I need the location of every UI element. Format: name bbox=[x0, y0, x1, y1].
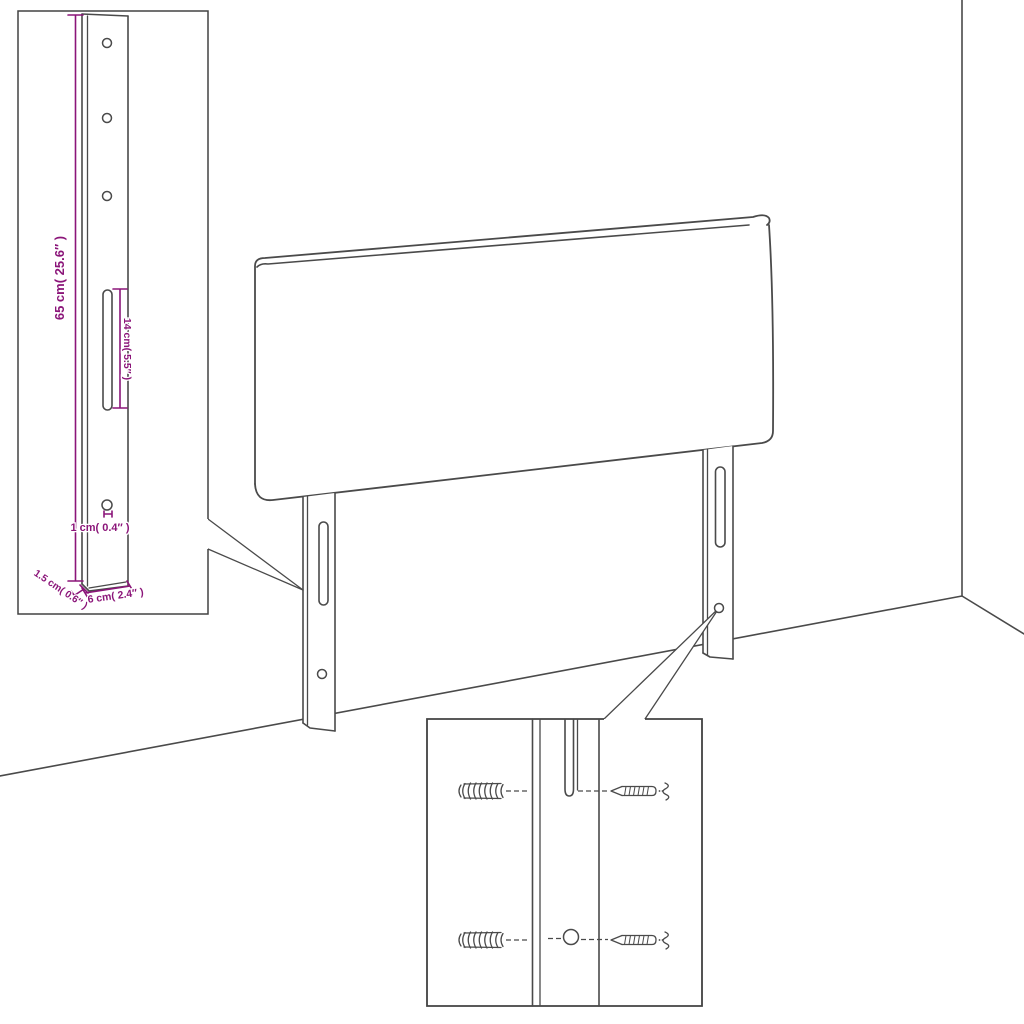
right-leg bbox=[703, 446, 733, 659]
left-leg-hole bbox=[318, 670, 327, 679]
screw-dot-1 bbox=[659, 790, 661, 792]
right-leg-hole bbox=[715, 604, 724, 613]
diagram-canvas: 65 cm( 25.6″ ) 14 cm( 5.5″ ) 1 cm( 0.4″ … bbox=[0, 0, 1024, 1024]
strip-hole bbox=[564, 930, 579, 945]
right-leader-line-2 bbox=[645, 608, 719, 719]
screw-dot-1 bbox=[659, 939, 661, 941]
label-hole-diameter: 1 cm( 0.4″ ) bbox=[70, 522, 129, 534]
floor-line-right bbox=[962, 596, 1024, 634]
label-slot-length: 14 cm( 5.5″ ) bbox=[121, 318, 133, 380]
inset-leg-hole-1 bbox=[103, 39, 112, 48]
assembly-diagram: 65 cm( 25.6″ ) 14 cm( 5.5″ ) 1 cm( 0.4″ … bbox=[0, 0, 1024, 1024]
right-leader-line-1 bbox=[604, 608, 719, 719]
headboard-panel bbox=[255, 215, 773, 500]
inset-leg-bottom-hole bbox=[102, 500, 112, 510]
label-leg-height: 65 cm( 25.6″ ) bbox=[52, 236, 67, 320]
left-leg bbox=[303, 493, 335, 731]
inset-leg-hole-3 bbox=[103, 192, 112, 201]
inset-mounting-hardware bbox=[427, 719, 702, 1006]
inset-leg-dimensions: 65 cm( 25.6″ ) 14 cm( 5.5″ ) 1 cm( 0.4″ … bbox=[18, 11, 208, 614]
inset-leg-hole-2 bbox=[103, 114, 112, 123]
